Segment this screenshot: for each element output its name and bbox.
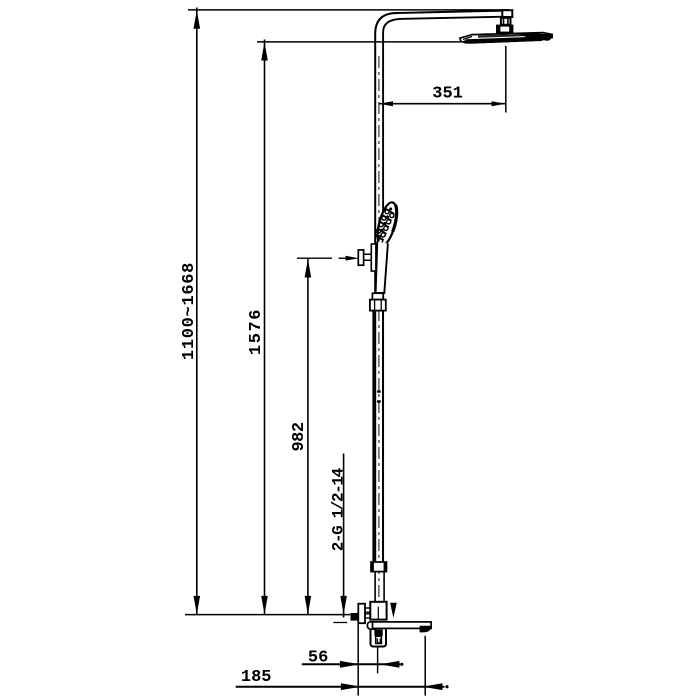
svg-text:2-G 1/2-14: 2-G 1/2-14 xyxy=(330,467,348,551)
svg-text:185: 185 xyxy=(241,668,272,687)
svg-text:56: 56 xyxy=(308,648,328,667)
svg-text:982: 982 xyxy=(290,422,309,451)
svg-text:351: 351 xyxy=(432,85,463,104)
svg-text:1100~1668: 1100~1668 xyxy=(180,262,199,360)
svg-text:1576: 1576 xyxy=(247,308,266,355)
